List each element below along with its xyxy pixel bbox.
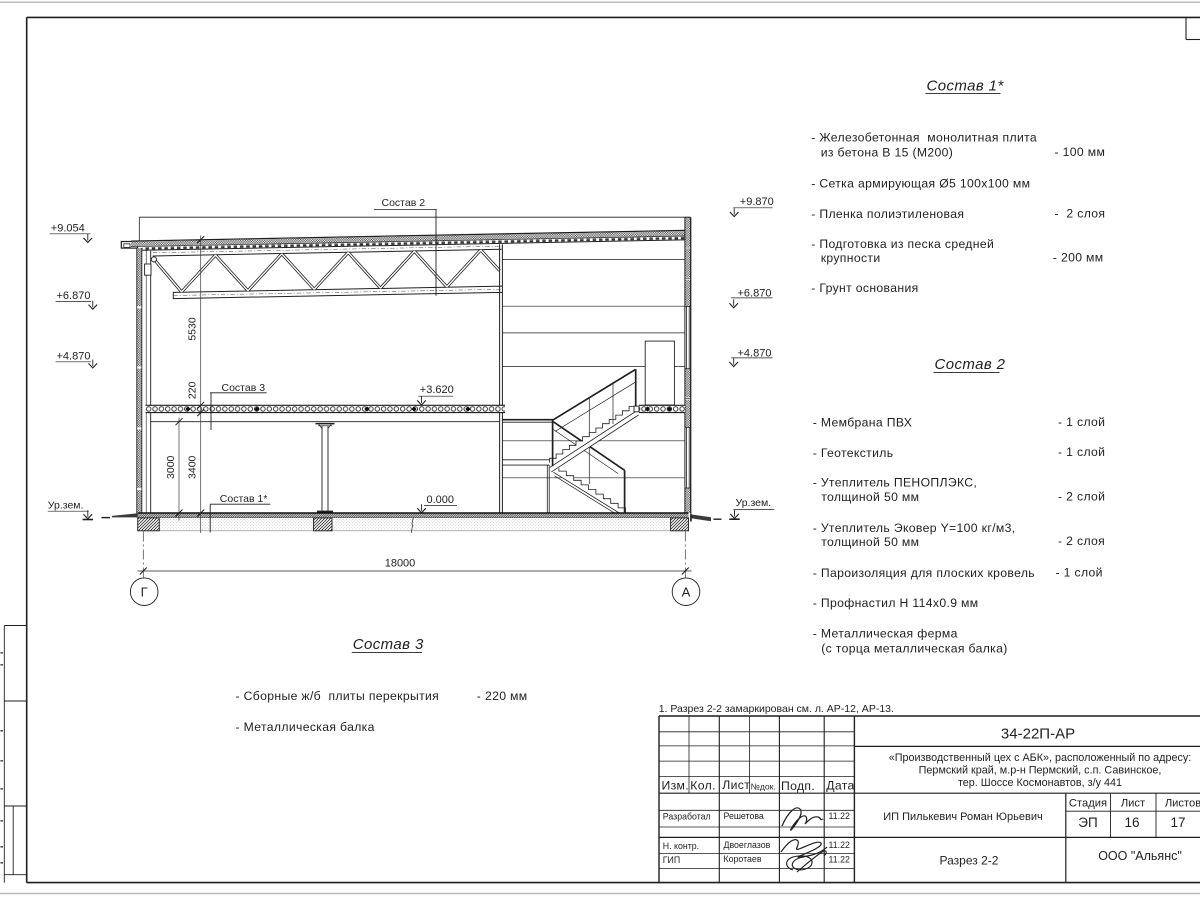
- svg-text:1. Разрез 2-2 замаркирован см.: 1. Разрез 2-2 замаркирован см. л. АР-12,…: [659, 703, 894, 715]
- svg-text:- Сетка армирующая Ø5 100х100: - Сетка армирующая Ø5 100х100 мм: [811, 177, 1030, 191]
- svg-text:Состав 1*: Состав 1*: [220, 493, 268, 505]
- svg-text:17: 17: [1170, 815, 1185, 830]
- svg-text:Дата: Дата: [826, 778, 854, 792]
- svg-text:ООО "Альянс": ООО "Альянс": [1098, 849, 1182, 863]
- svg-text:+9.870: +9.870: [740, 196, 774, 208]
- svg-text:- 2 слой: - 2 слой: [1058, 489, 1105, 503]
- svg-text:- Грунт основания: - Грунт основания: [811, 281, 918, 295]
- svg-text:ИП Пилькевич Роман Юрьевич: ИП Пилькевич Роман Юрьевич: [883, 811, 1042, 823]
- svg-text:+3.620: +3.620: [420, 384, 454, 396]
- svg-text:- 2 слоя: - 2 слоя: [1058, 534, 1105, 548]
- svg-text:толщиной 50 мм: толщиной 50 мм: [821, 535, 919, 549]
- svg-text:18000: 18000: [385, 558, 416, 570]
- svg-text:- Профнастил Н 114х0.9 мм: - Профнастил Н 114х0.9 мм: [813, 596, 979, 610]
- svg-text:+9.054: +9.054: [51, 222, 85, 234]
- svg-text:220: 220: [187, 381, 199, 399]
- svg-text:Н. контр.: Н. контр.: [663, 841, 699, 851]
- svg-text:Решетова: Решетова: [724, 811, 764, 821]
- svg-text:3000: 3000: [165, 455, 177, 479]
- svg-text:Пермский край, м.р-н Пермский,: Пермский край, м.р-н Пермский, с.п. Сави…: [919, 764, 1162, 776]
- svg-text:- Подготовка из песка средней: - Подготовка из песка средней: [811, 237, 994, 251]
- svg-text:- Пленка полиэтиленовая: - Пленка полиэтиленовая: [811, 207, 964, 221]
- svg-text:- Сборные ж/б плиты перекрыти: - Сборные ж/б плиты перекрытия: [236, 689, 440, 703]
- svg-text:11.22: 11.22: [829, 854, 850, 864]
- svg-text:Лист: Лист: [722, 778, 750, 792]
- svg-text:А: А: [682, 585, 691, 600]
- svg-text:Разрез 2-2: Разрез 2-2: [940, 853, 999, 867]
- svg-text:«Производственный цех с АБК»,: «Производственный цех с АБК», расположен…: [889, 752, 1192, 764]
- svg-text:- Мембрана ПВХ: - Мембрана ПВХ: [813, 416, 913, 430]
- svg-text:Ур.зем.: Ур.зем.: [48, 499, 84, 511]
- svg-text:Разработал: Разработал: [663, 811, 711, 821]
- svg-text:Состав 3: Состав 3: [222, 382, 266, 394]
- svg-text:- Железобетонная монолитная п: - Железобетонная монолитная плита: [811, 131, 1037, 145]
- svg-text:тер. Шоссе Космонавтов, з/у 44: тер. Шоссе Космонавтов, з/у 441: [958, 777, 1122, 789]
- svg-text:ЭП: ЭП: [1078, 815, 1097, 830]
- svg-text:Листов: Листов: [1165, 798, 1200, 810]
- svg-text:+6.870: +6.870: [738, 287, 772, 299]
- svg-text:+4.870: +4.870: [57, 350, 91, 362]
- svg-text:Двоеглазов: Двоеглазов: [724, 840, 771, 850]
- svg-text:5530: 5530: [187, 317, 199, 341]
- svg-text:Лист: Лист: [1121, 798, 1145, 810]
- svg-text:Кол.: Кол.: [690, 779, 716, 793]
- svg-text:Состав 1*: Состав 1*: [927, 78, 1005, 95]
- svg-text:Коротаев: Коротаев: [724, 854, 762, 864]
- svg-text:- Металлическая балка: - Металлическая балка: [236, 720, 375, 734]
- svg-text:+4.870: +4.870: [738, 347, 772, 359]
- svg-text:- 100 мм: - 100 мм: [1055, 145, 1106, 159]
- svg-text:ГИП: ГИП: [663, 855, 680, 865]
- svg-text:- 1 слой: - 1 слой: [1058, 445, 1105, 459]
- svg-text:крупности: крупности: [821, 251, 881, 265]
- svg-text:- 220 мм: - 220 мм: [477, 689, 528, 703]
- svg-text:из бетона В 15 (М200): из бетона В 15 (М200): [821, 146, 954, 160]
- svg-text:№док.: №док.: [751, 781, 776, 791]
- svg-text:11.22: 11.22: [829, 811, 850, 821]
- svg-text:Изм.: Изм.: [662, 779, 690, 793]
- svg-text:- Пароизоляция для плоских кро: - Пароизоляция для плоских кровель: [813, 566, 1035, 580]
- svg-text:- Металлическая ферма: - Металлическая ферма: [813, 627, 958, 641]
- svg-text:толщиной 50 мм: толщиной 50 мм: [821, 490, 919, 504]
- svg-text:Стадия: Стадия: [1069, 798, 1107, 810]
- svg-text:16: 16: [1124, 815, 1139, 830]
- svg-text:- 1 слой: - 1 слой: [1056, 565, 1103, 579]
- svg-text:Г: Г: [141, 585, 148, 600]
- svg-text:3400: 3400: [187, 455, 199, 479]
- svg-text:+6.870: +6.870: [57, 290, 91, 302]
- svg-text:- Утеплитель Эковер Y=100 кг/м: - Утеплитель Эковер Y=100 кг/м3,: [813, 521, 1016, 535]
- svg-text:- Геотекстиль: - Геотекстиль: [813, 446, 894, 460]
- svg-text:- 200 мм: - 200 мм: [1053, 250, 1104, 264]
- svg-text:- 2 слоя: - 2 слоя: [1055, 206, 1106, 220]
- svg-text:Состав 3: Состав 3: [353, 636, 424, 653]
- svg-text:- Утеплитель ПЕНОПЛЭКС,: - Утеплитель ПЕНОПЛЭКС,: [813, 475, 977, 489]
- svg-text:11.22: 11.22: [829, 840, 850, 850]
- svg-text:Состав 2: Состав 2: [935, 356, 1006, 373]
- svg-text:34-22П-АР: 34-22П-АР: [1001, 726, 1075, 743]
- svg-text:(с торца металлическая балка): (с торца металлическая балка): [821, 642, 1007, 656]
- svg-text:Состав 2: Состав 2: [382, 197, 426, 209]
- svg-text:- 1 слой: - 1 слой: [1058, 415, 1105, 429]
- svg-text:Подп.: Подп.: [781, 779, 815, 793]
- svg-text:0.000: 0.000: [427, 494, 455, 506]
- svg-text:Ур.зем.: Ур.зем.: [736, 497, 772, 509]
